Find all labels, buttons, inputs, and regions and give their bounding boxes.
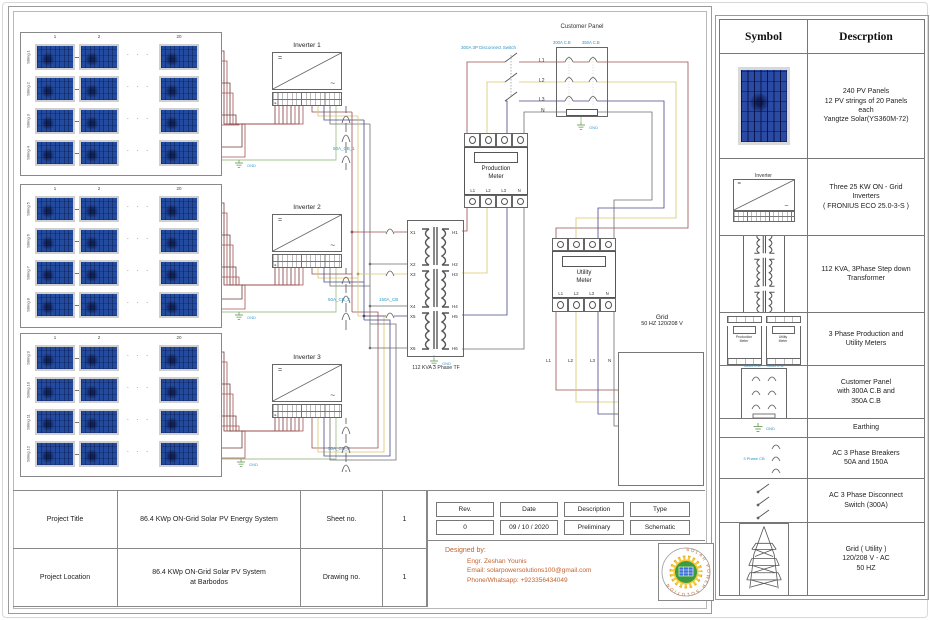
pv-col-label: 20 — [173, 335, 185, 340]
production-meter-name: Production Meter — [465, 166, 527, 181]
pv-panel-icon — [738, 67, 790, 145]
legend-desc-inverter: Three 25 KW ON - Grid Inverters ( FRONIU… — [807, 158, 924, 235]
production-meter: Production Meter L1L2 L3N — [464, 147, 528, 195]
pv-panel — [159, 196, 199, 222]
line-label-n: N — [541, 108, 545, 114]
pv-array-group-3: 1 2 20 String 9 · · · String 10 · · · St… — [20, 333, 222, 477]
dc-symbol: = — [278, 367, 282, 374]
breaker-label-50a-3: 50A_CB_3 — [328, 446, 350, 451]
pv-panel — [159, 260, 199, 286]
continuation-dots: · · · — [121, 204, 157, 210]
pv-string-label: String 7 — [26, 260, 31, 286]
transformer-box — [407, 220, 464, 357]
pv-string-label: String 12 — [26, 441, 31, 467]
legend-table: Symbol Descrption 240 PV Panels 12 PV st… — [719, 19, 925, 596]
pv-panel — [159, 292, 199, 318]
pv-panel — [159, 44, 199, 70]
pv-col-label: 20 — [173, 186, 185, 191]
project-location-value: 86.4 KWp ON-Grid Solar PV System at Barb… — [118, 549, 301, 607]
utility-meter-terminals-bottom — [552, 298, 616, 312]
schematic-sheet: X1 X2 X3 X4 X5 X6 H1 H2 H3 H4 H5 H6 — [0, 0, 930, 620]
utility-meter: Utility Meter L1L2 L3N — [552, 251, 616, 298]
inverter-terminals-icon — [733, 211, 795, 222]
pv-string-label: String 11 — [26, 409, 31, 435]
solar-power-solution-logo-icon: SOLAR POWER SOLUTION — [659, 544, 713, 600]
pv-panel — [35, 260, 75, 286]
customer-panel-icon — [741, 368, 787, 419]
pv-panel — [159, 228, 199, 254]
continuation-dots: · · · — [121, 353, 157, 359]
pv-string-row: String 12 · · · — [21, 441, 221, 467]
pv-string-label: String 8 — [26, 292, 31, 318]
dc-symbol: = — [278, 217, 282, 224]
continuation-dots: · · · — [121, 417, 157, 423]
pv-panel — [79, 377, 119, 403]
type-value: Schematic — [630, 520, 690, 535]
project-info-table: Project Title 86.4 KWp ON-Grid Solar PV … — [13, 491, 427, 607]
description-value: Preliminary — [564, 520, 624, 535]
ac-symbol: ~ — [330, 241, 335, 250]
legend-desc-meters: 3 Phase Production and Utility Meters — [807, 312, 924, 365]
inverter-icon: = ~ — [733, 179, 795, 211]
pv-string-label: String 6 — [26, 228, 31, 254]
designer-name: Engr. Zeshan Younis — [467, 557, 591, 567]
sheet-no-value: 1 — [383, 491, 427, 549]
pv-string-row: String 3 · · · — [21, 108, 221, 134]
pv-panel — [35, 409, 75, 435]
legend-desc-breakers: AC 3 Phase Breakers 50A and 150A — [807, 437, 924, 478]
utility-meter-name: Utility Meter — [553, 270, 615, 285]
ground-icon — [752, 423, 764, 434]
inverter-3-label: Inverter 3 — [272, 354, 342, 361]
pv-panel — [79, 228, 119, 254]
pv-panel — [35, 108, 75, 134]
meter-line-labels: L1L2 L3N — [465, 188, 527, 193]
neutral-bar — [566, 109, 598, 116]
pv-array-group-1: 1 2 20 String 1 · · · String 2 · · · Str… — [20, 32, 222, 176]
pv-string-row: String 7 · · · — [21, 260, 221, 286]
pv-panel — [79, 44, 119, 70]
pv-col-label: 20 — [173, 34, 185, 39]
rev-value: 0 — [436, 520, 494, 535]
designed-by-heading: Designed by: — [445, 546, 591, 557]
project-title-value: 86.4 KWp ON-Grid Solar PV Energy System — [118, 491, 301, 549]
inverter-2: = ~ — [272, 214, 342, 252]
continuation-dots: · · · — [121, 236, 157, 242]
legend-desc-customer-panel: Customer Panel with 300A C.B and 350A C.… — [807, 365, 924, 418]
grid-label: Grid 50 HZ 120/208 V — [618, 314, 706, 327]
description-header: Description — [564, 502, 624, 517]
titleblock-vdivider — [427, 490, 428, 607]
date-value: 09 / 10 / 2020 — [500, 520, 558, 535]
inverter-2-terminals — [272, 254, 342, 268]
production-meter-terminals-top — [464, 133, 528, 147]
breaker-icon — [768, 440, 784, 476]
pv-string-label: String 3 — [26, 108, 31, 134]
designer-block: Designed by: Engr. Zeshan Younis Email: … — [445, 546, 591, 586]
legend-symbol-earthing: GND — [720, 418, 807, 437]
inverter-2-label: Inverter 2 — [272, 204, 342, 211]
pv-panel — [159, 76, 199, 102]
pv-string-row: String 4 · · · — [21, 140, 221, 166]
transformer-icon — [743, 235, 785, 312]
company-logo: SOLAR POWER SOLUTION — [658, 543, 714, 601]
project-title-label: Project Title — [13, 491, 118, 549]
dc-symbol: = — [278, 55, 282, 62]
pv-string-label: String 9 — [26, 345, 31, 371]
legend-symbol-disconnect — [720, 478, 807, 522]
legend-symbol-breakers: 3 Phase CB — [720, 437, 807, 478]
pv-string-label: String 4 — [26, 140, 31, 166]
grid-line-label-l2: L2 — [568, 358, 573, 363]
legend-desc-pv-panel: 240 PV Panels 12 PV strings of 20 Panels… — [807, 53, 924, 158]
project-location-label: Project Location — [13, 549, 118, 607]
pv-panel — [79, 260, 119, 286]
legend-header-description: Descrption — [807, 20, 924, 53]
pv-string-row: String 1 · · · — [21, 44, 221, 70]
grid-line-label-n: N — [608, 358, 611, 363]
ac-symbol: ~ — [330, 391, 335, 400]
pv-panel — [79, 345, 119, 371]
pv-col-label: 1 — [49, 335, 61, 340]
pv-panel — [79, 76, 119, 102]
pv-panel — [79, 441, 119, 467]
legend-symbol-meters: Production Meter Utility Meter — [720, 312, 807, 365]
grid-line-label-l3: L3 — [590, 358, 595, 363]
drawing-no-label: Drawing no. — [301, 549, 383, 607]
grid-line-label-l1: L1 — [546, 358, 551, 363]
disconnect-switch-icon — [754, 481, 774, 521]
pv-string-row: String 9 · · · — [21, 345, 221, 371]
designer-email: Email: solarpowersolutions100@gmail.com — [467, 566, 591, 576]
pv-panel — [79, 292, 119, 318]
designer-phone: Phone/Whatsapp: +923356434049 — [467, 576, 591, 586]
pv-string-label: String 5 — [26, 196, 31, 222]
pv-panel — [35, 228, 75, 254]
pv-panel — [35, 377, 75, 403]
pv-string-row: String 2 · · · — [21, 76, 221, 102]
panel-cb-350a-label: 350A C.B — [582, 40, 600, 45]
inverter-3-terminals — [272, 404, 342, 418]
pv-panel — [35, 76, 75, 102]
pv-panel — [79, 108, 119, 134]
pv-panel — [159, 409, 199, 435]
customer-panel-title: Customer Panel — [556, 24, 608, 32]
legend-desc-earthing: Earthing — [807, 418, 924, 437]
legend-symbol-customer-panel: 300A C.B 350A C.B — [720, 365, 807, 418]
pv-panel — [79, 196, 119, 222]
line-label-l1: L1 — [539, 58, 545, 64]
pv-string-row: String 5 · · · — [21, 196, 221, 222]
customer-panel-box — [556, 47, 608, 117]
grid-utility-box — [618, 352, 704, 486]
pv-col-label: 1 — [49, 34, 61, 39]
pv-panel — [159, 108, 199, 134]
continuation-dots: · · · — [121, 148, 157, 154]
pv-panel — [35, 44, 75, 70]
pv-panel — [159, 441, 199, 467]
legend-desc-grid: Grid ( Utility ) 120/208 V - AC 50 HZ — [807, 522, 924, 595]
continuation-dots: · · · — [121, 385, 157, 391]
line-label-l3: L3 — [539, 97, 545, 103]
continuation-dots: · · · — [121, 449, 157, 455]
legend-desc-disconnect: AC 3 Phase Disconnect Switch (300A) — [807, 478, 924, 522]
pv-col-label: 2 — [93, 186, 105, 191]
ac-symbol: ~ — [330, 79, 335, 88]
breaker-label-150a: 150A_CB — [379, 297, 398, 302]
legend-header-symbol: Symbol — [720, 20, 807, 53]
inverter-1-label: Inverter 1 — [272, 42, 342, 49]
meter-display — [474, 152, 518, 163]
pv-col-label: 1 — [49, 186, 61, 191]
date-header: Date — [500, 502, 558, 517]
pv-panel — [159, 345, 199, 371]
grid-tower-icon — [739, 523, 789, 596]
pv-col-label: 2 — [93, 34, 105, 39]
pv-panel — [79, 140, 119, 166]
panel-cb-300a-label: 300A C.B — [553, 40, 571, 45]
line-label-l2: L2 — [539, 78, 545, 84]
pv-panel — [35, 196, 75, 222]
pv-array-group-2: 1 2 20 String 5 · · · String 6 · · · Str… — [20, 184, 222, 328]
pv-panel — [35, 292, 75, 318]
disconnect-switch-label: 300A 3P Disconnect Switch — [461, 45, 541, 50]
sheet-no-label: Sheet no. — [301, 491, 383, 549]
legend-symbol-transformer — [720, 235, 807, 312]
pv-panel — [35, 140, 75, 166]
breaker-label-50a-2: 50A_CB_2 — [328, 297, 350, 302]
production-meter-terminals-bottom — [464, 195, 528, 208]
pv-string-label: String 1 — [26, 44, 31, 70]
pv-string-row: String 10 · · · — [21, 377, 221, 403]
pv-string-label: String 2 — [26, 76, 31, 102]
utility-meter-terminals-top — [552, 238, 616, 251]
pv-panel — [35, 441, 75, 467]
pv-panel — [159, 377, 199, 403]
pv-panel — [79, 409, 119, 435]
continuation-dots: · · · — [121, 116, 157, 122]
breaker-label-50a-1: 50A_CB_1 — [333, 146, 355, 151]
legend-desc-transformer: 112 KVA, 3Phase Step down Transformer — [807, 235, 924, 312]
continuation-dots: · · · — [121, 300, 157, 306]
revision-divider — [427, 540, 705, 541]
utility-meter-icon: Utility Meter — [766, 316, 801, 362]
meter-display — [562, 256, 606, 267]
inverter-1: = ~ — [272, 52, 342, 90]
continuation-dots: · · · — [121, 52, 157, 58]
production-meter-icon: Production Meter — [727, 316, 762, 362]
rev-header: Rev. — [436, 502, 494, 517]
pv-string-label: String 10 — [26, 377, 31, 403]
meter-line-labels: L1L2 L3N — [553, 291, 615, 296]
pv-col-label: 2 — [93, 335, 105, 340]
transformer-label: 112 KVA 3 Phase TF — [398, 365, 474, 371]
inverter-1-terminals — [272, 92, 342, 106]
type-header: Type — [630, 502, 690, 517]
legend-symbol-grid — [720, 522, 807, 595]
continuation-dots: · · · — [121, 84, 157, 90]
legend-symbol-inverter: Inverter = ~ — [720, 158, 807, 235]
pv-panel — [159, 140, 199, 166]
pv-string-row: String 11 · · · — [21, 409, 221, 435]
continuation-dots: · · · — [121, 268, 157, 274]
legend-symbol-pv-panel — [720, 53, 807, 158]
inverter-3: = ~ — [272, 364, 342, 402]
pv-string-row: String 6 · · · — [21, 228, 221, 254]
pv-string-row: String 8 · · · — [21, 292, 221, 318]
pv-panel — [35, 345, 75, 371]
drawing-no-value: 1 — [383, 549, 427, 607]
